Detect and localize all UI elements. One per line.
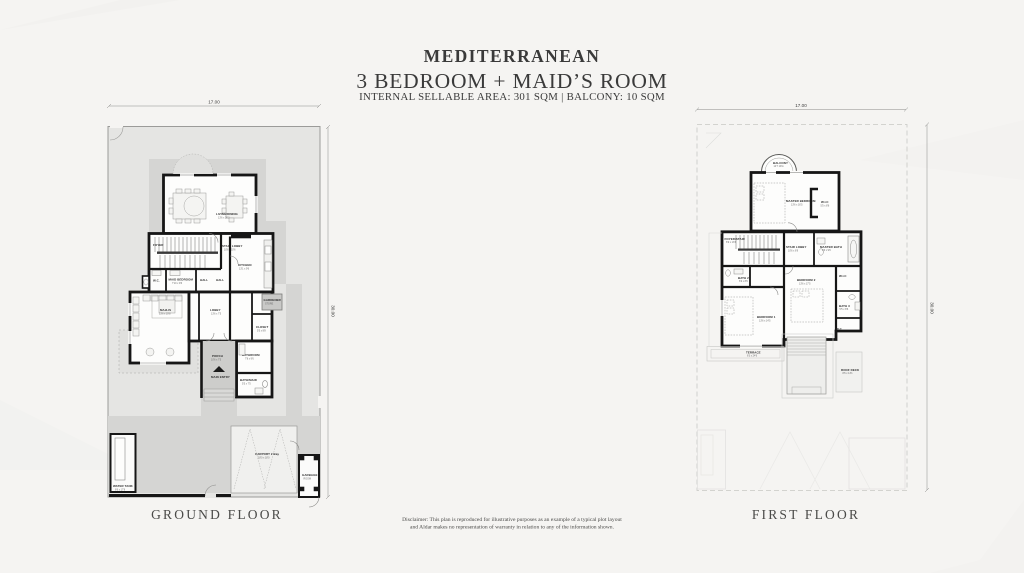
svg-text:7'10 x 9'6: 7'10 x 9'6 xyxy=(172,282,183,285)
svg-text:6'9 x 13'6: 6'9 x 13'6 xyxy=(726,241,737,244)
svg-text:8'6 x 13'1: 8'6 x 13'1 xyxy=(843,372,854,375)
svg-text:STORE: STORE xyxy=(265,303,274,306)
svg-text:5'5 x 8'6: 5'5 x 8'6 xyxy=(840,308,849,311)
svg-text:MEDITERRANEAN: MEDITERRANEAN xyxy=(424,46,601,66)
svg-text:17.00: 17.00 xyxy=(795,103,807,108)
svg-text:GROUND FLOOR: GROUND FLOOR xyxy=(151,507,283,522)
svg-text:PORCH: PORCH xyxy=(212,354,223,358)
svg-text:10'6 x 7'5: 10'6 x 7'5 xyxy=(211,359,222,362)
svg-text:ROOM: ROOM xyxy=(304,478,311,481)
svg-text:LOBBY: LOBBY xyxy=(210,308,221,312)
svg-text:13'1 x 9'6: 13'1 x 9'6 xyxy=(239,268,250,271)
svg-text:13'6 x 17'5: 13'6 x 17'5 xyxy=(799,283,811,286)
svg-text:MAJLIS: MAJLIS xyxy=(160,308,171,312)
svg-text:W.C: W.C xyxy=(836,327,843,331)
svg-text:GARDENER: GARDENER xyxy=(264,298,282,302)
svg-text:13'6 x 19'8: 13'6 x 19'8 xyxy=(159,313,171,316)
svg-text:HALL: HALL xyxy=(216,278,224,282)
svg-text:13'6 x 14'5: 13'6 x 14'5 xyxy=(759,320,771,323)
svg-text:Disclaimer: This plan is repr: Disclaimer: This plan is reproduced for … xyxy=(402,516,622,523)
svg-text:30.00: 30.00 xyxy=(331,305,336,317)
svg-text:5'5 x 8'8: 5'5 x 8'8 xyxy=(257,330,266,333)
svg-text:CARPORT 2 Bay: CARPORT 2 Bay xyxy=(255,452,279,456)
svg-text:W.C.: W.C. xyxy=(153,279,160,283)
svg-text:WATER TANK: WATER TANK xyxy=(113,484,134,488)
svg-text:7'8 x 9'6: 7'8 x 9'6 xyxy=(245,358,254,361)
svg-text:6'3 x 24'6: 6'3 x 24'6 xyxy=(747,355,758,358)
svg-text:STAIR LOBBY: STAIR LOBBY xyxy=(222,244,242,248)
svg-text:13'6 x 16'5: 13'6 x 16'5 xyxy=(791,204,803,207)
svg-text:and Aldar makes no representat: and Aldar makes no representation of war… xyxy=(410,524,615,531)
svg-text:CLOSET: CLOSET xyxy=(256,325,268,329)
svg-text:FIRST FLOOR: FIRST FLOOR xyxy=(752,507,860,522)
svg-text:10'6 x 6'9: 10'6 x 6'9 xyxy=(788,250,799,253)
svg-text:30.00: 30.00 xyxy=(930,302,935,314)
svg-text:BATH/MAID: BATH/MAID xyxy=(240,378,257,382)
svg-text:6'9 x 8'6: 6'9 x 8'6 xyxy=(739,280,748,283)
svg-text:LIVING/DINING: LIVING/DINING xyxy=(216,212,239,216)
svg-text:FOYER: FOYER xyxy=(153,243,164,247)
svg-text:STAIR LOBBY: STAIR LOBBY xyxy=(786,245,806,249)
svg-text:INTERNAL SELLABLE AREA: 301 S: INTERNAL SELLABLE AREA: 301 SQM | BALCON… xyxy=(359,91,665,103)
svg-text:17.00: 17.00 xyxy=(208,100,220,105)
svg-text:W.I.C: W.I.C xyxy=(821,200,829,204)
svg-text:13'6 x 26'3: 13'6 x 26'3 xyxy=(218,217,230,220)
svg-text:6'6 x 17'8: 6'6 x 17'8 xyxy=(115,489,126,492)
svg-text:14'7 19'm: 14'7 19'm xyxy=(774,165,784,168)
svg-text:KITCHEN: KITCHEN xyxy=(238,263,252,267)
svg-text:BEDROOM 2: BEDROOM 2 xyxy=(797,278,816,282)
svg-text:5'5 x 8'6: 5'5 x 8'6 xyxy=(821,205,830,208)
svg-text:MAID BEDROOM: MAID BEDROOM xyxy=(169,278,194,282)
svg-text:BEDROOM 1: BEDROOM 1 xyxy=(757,315,776,319)
svg-text:MAIN ENTRY: MAIN ENTRY xyxy=(211,375,230,379)
svg-text:13'6 x 7'5: 13'6 x 7'5 xyxy=(211,313,222,316)
svg-text:W.I.C: W.I.C xyxy=(839,274,847,278)
svg-text:3 BEDROOM + MAID’S ROOM: 3 BEDROOM + MAID’S ROOM xyxy=(356,69,667,93)
svg-text:5'5 x 7'5: 5'5 x 7'5 xyxy=(242,383,251,386)
svg-text:HALL: HALL xyxy=(200,278,208,282)
svg-text:GARBAGE: GARBAGE xyxy=(302,473,317,477)
svg-text:18'0 x 18'0: 18'0 x 18'0 xyxy=(258,457,270,460)
